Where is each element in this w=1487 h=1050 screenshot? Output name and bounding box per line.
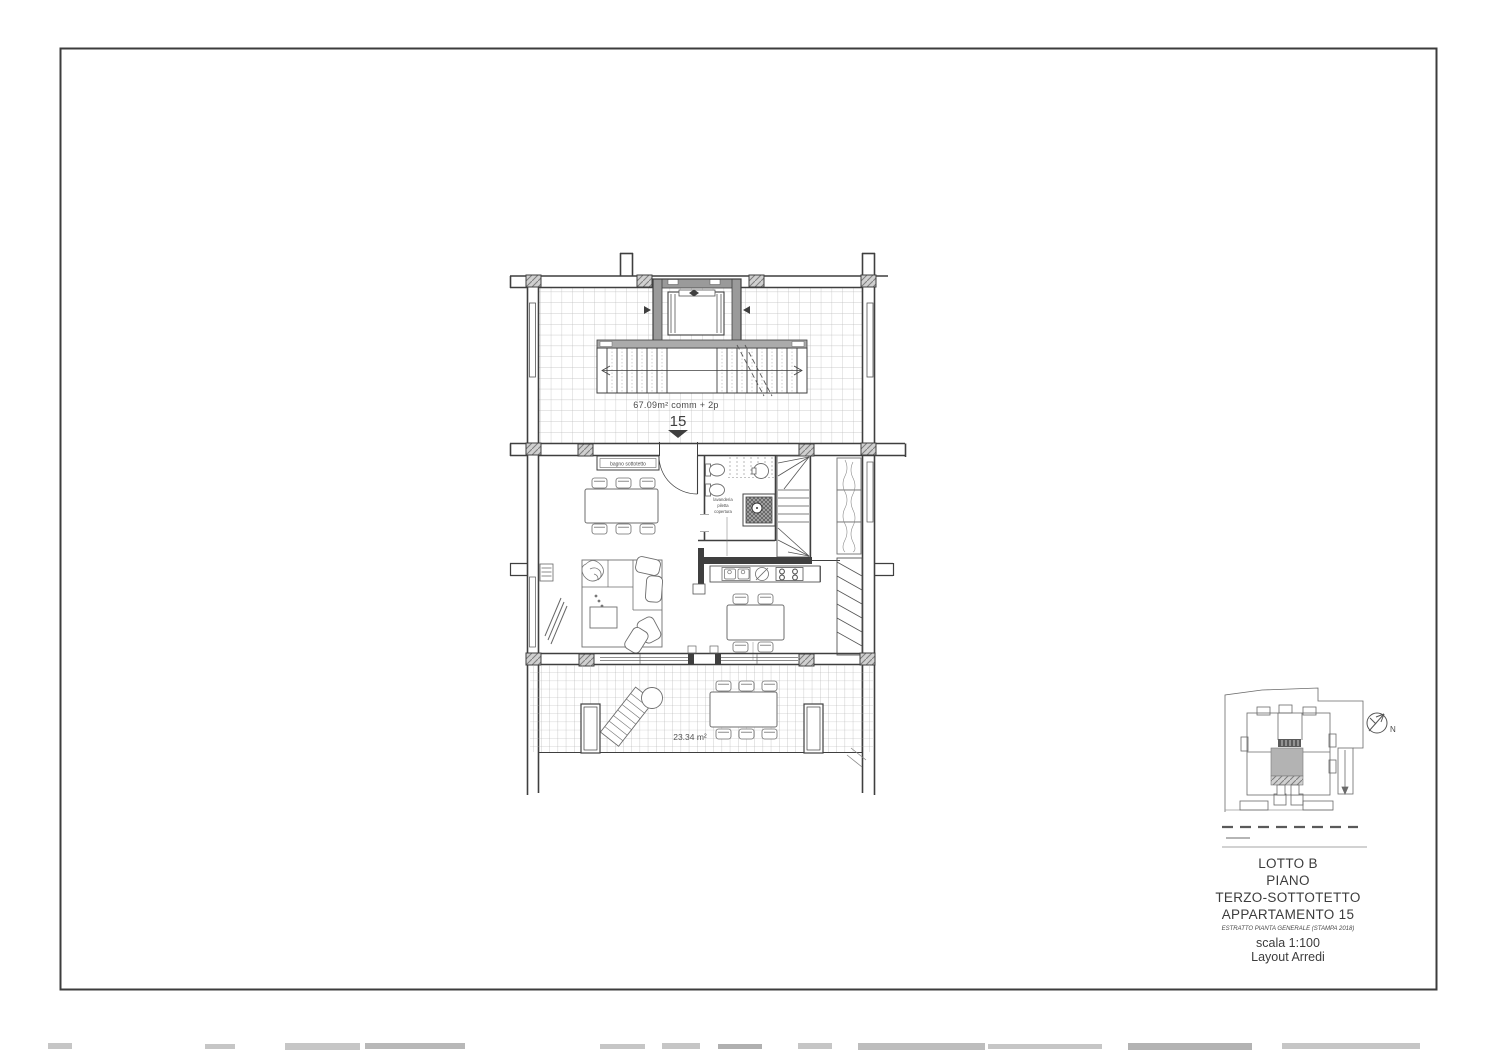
planter — [804, 704, 823, 753]
pillar — [637, 275, 652, 287]
attic-window-left — [530, 303, 536, 377]
dining-table — [585, 478, 658, 534]
common-staircase — [597, 340, 807, 396]
pillar — [749, 275, 764, 287]
terrace-area-label: 23.34 m² — [673, 732, 707, 742]
title-note: ESTRATTO PIANTA GENERALE (STAMPA 2018) — [1190, 925, 1386, 934]
kitchen-wall — [698, 557, 812, 564]
svg-text:lavanderia: lavanderia — [713, 497, 733, 502]
shower — [743, 494, 775, 526]
pillar — [799, 654, 814, 666]
elevator-car — [668, 292, 724, 335]
title-apartment: APPARTAMENTO 15 — [1190, 906, 1386, 923]
pillar — [578, 444, 593, 456]
pillar — [799, 444, 814, 456]
title-block: LOTTO B PIANO TERZO-SOTTOTETTO APPARTAME… — [1190, 855, 1386, 965]
pillar — [526, 653, 541, 665]
coffee-table — [590, 607, 617, 628]
pillar — [526, 443, 541, 455]
title-floor-label: PIANO — [1190, 872, 1386, 889]
title-lot: LOTTO B — [1190, 855, 1386, 872]
pillar — [579, 654, 594, 666]
radiator-icon — [540, 564, 553, 581]
bidet-icon — [706, 484, 725, 496]
terrace-table — [710, 681, 777, 739]
wardrobe — [837, 458, 861, 554]
svg-text:copertura: copertura — [714, 509, 732, 514]
door-jamb — [688, 654, 694, 665]
kitchen-sink — [722, 568, 750, 581]
unit-number-label: 15 — [670, 413, 687, 430]
planter — [581, 704, 600, 753]
elevator — [644, 279, 750, 341]
pillar — [860, 653, 875, 665]
side-table — [642, 688, 663, 709]
terrace: 23.34 m² — [530, 665, 873, 767]
pillar — [861, 443, 876, 455]
unit-area-label: 67.09m² comm + 2p — [633, 400, 718, 410]
sofa — [582, 556, 663, 655]
window-right — [867, 462, 873, 522]
toilet-icon — [706, 464, 725, 476]
pillar — [526, 275, 541, 287]
door-jamb — [715, 654, 721, 665]
pillar — [861, 275, 876, 287]
living-window-left — [530, 577, 536, 647]
svg-text:piletta: piletta — [717, 503, 729, 508]
cooktop — [776, 568, 803, 581]
scan-artifact-band — [48, 1043, 1420, 1050]
title-layout: Layout Arredi — [1190, 950, 1386, 965]
bagno-label-box: bagno sottotetto — [597, 456, 659, 470]
title-scale: scala 1:100 — [1190, 936, 1386, 950]
attic-window-right — [867, 303, 873, 377]
north-label: N — [1390, 725, 1396, 734]
bagno-label: bagno sottotetto — [610, 462, 646, 468]
title-floor-name: TERZO-SOTTOTETTO — [1190, 889, 1386, 906]
drawing-sheet: 67.09m² comm + 2p 15 bagno so — [0, 0, 1487, 1050]
